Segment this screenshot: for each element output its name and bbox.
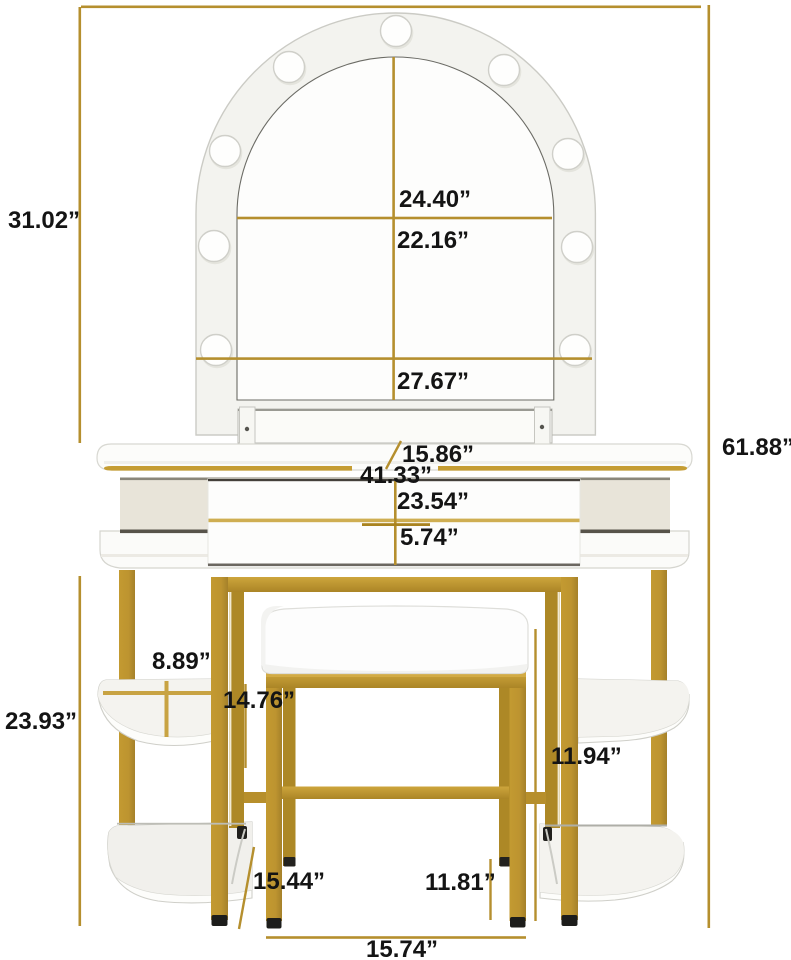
svg-text:11.81”: 11.81” — [425, 869, 496, 896]
svg-text:5.74”: 5.74” — [400, 524, 459, 551]
svg-text:41.33”: 41.33” — [360, 462, 432, 489]
svg-text:22.16”: 22.16” — [397, 227, 469, 254]
svg-text:61.88”: 61.88” — [722, 434, 791, 461]
svg-text:31.02”: 31.02” — [8, 207, 80, 234]
svg-text:15.74”: 15.74” — [366, 936, 438, 960]
svg-text:23.93”: 23.93” — [5, 708, 77, 735]
svg-text:24.40”: 24.40” — [399, 186, 471, 213]
svg-text:8.89”: 8.89” — [152, 648, 211, 675]
svg-text:14.76”: 14.76” — [223, 687, 295, 714]
svg-text:11.94”: 11.94” — [551, 743, 622, 770]
svg-text:15.44”: 15.44” — [253, 868, 325, 895]
svg-text:27.67”: 27.67” — [397, 368, 469, 395]
svg-text:23.54”: 23.54” — [397, 488, 469, 515]
